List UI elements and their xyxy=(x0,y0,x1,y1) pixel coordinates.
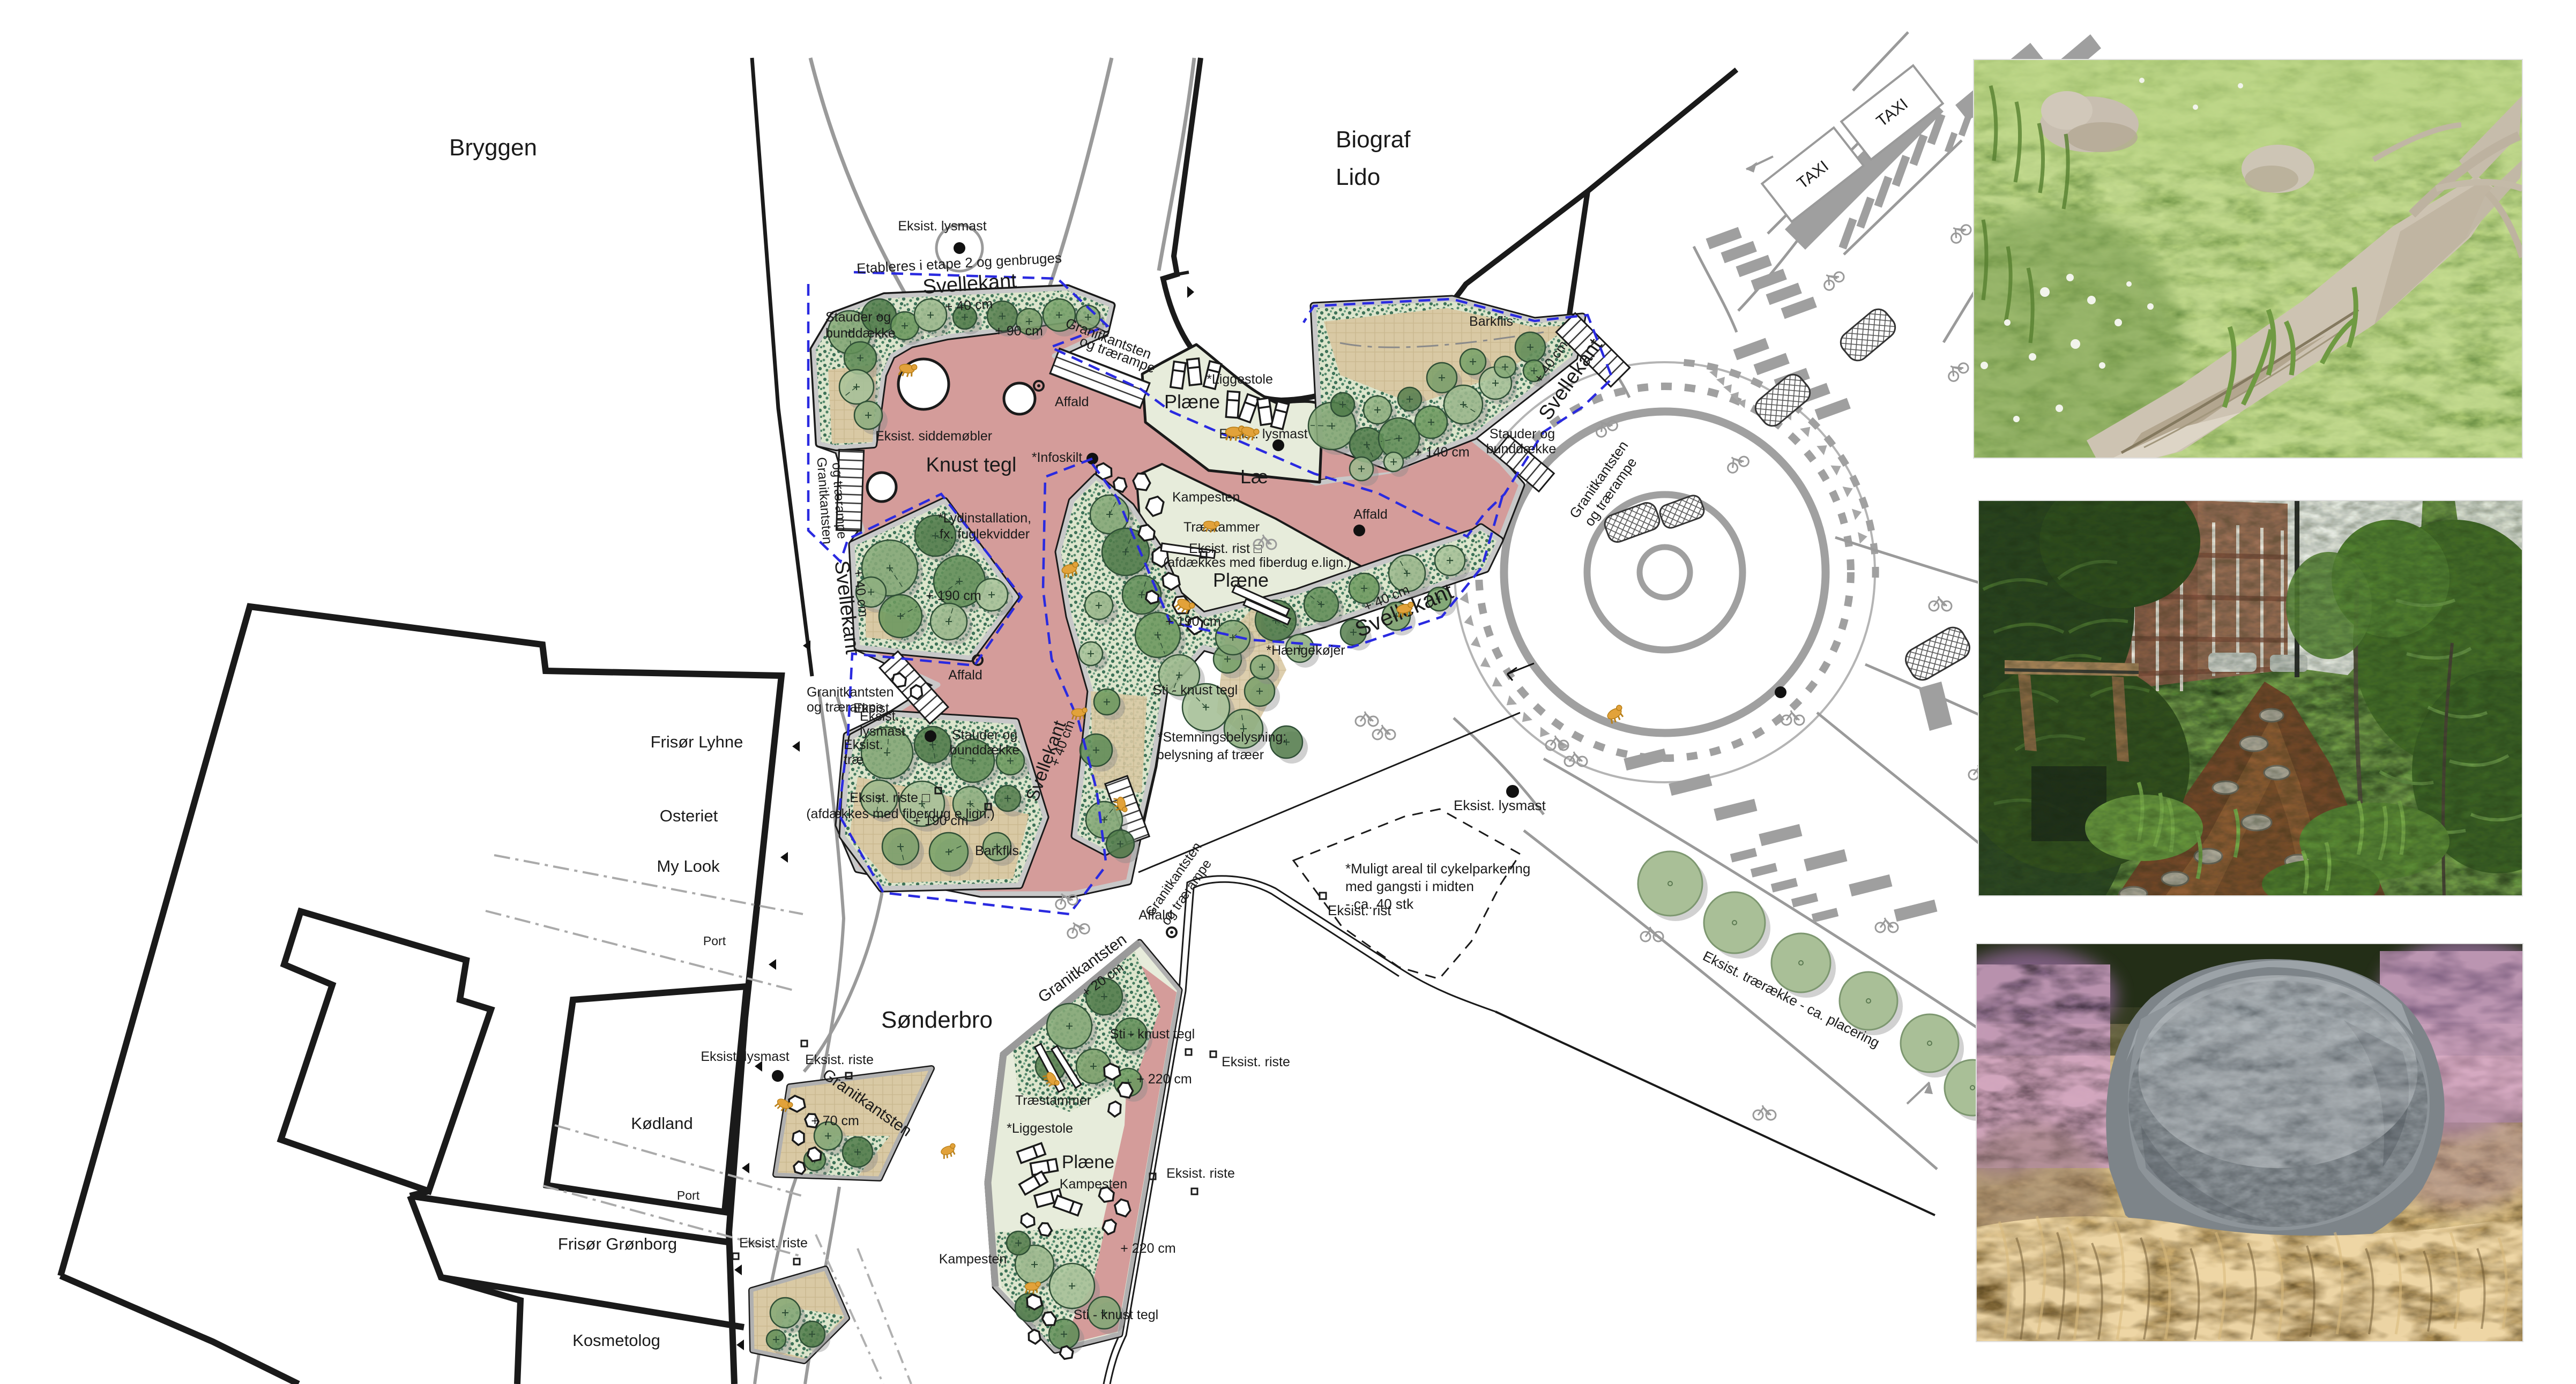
svg-text:Lido: Lido xyxy=(1336,164,1380,190)
svg-text:Eksist.: Eksist. xyxy=(853,701,893,716)
svg-text:+ 190 cm: + 190 cm xyxy=(926,588,981,603)
svg-text:+ 220 cm: + 220 cm xyxy=(1120,1241,1176,1256)
svg-text:*Stemningsbelysning:: *Stemningsbelysning: xyxy=(1158,730,1286,745)
svg-text:Affald: Affald xyxy=(1055,394,1089,409)
svg-text:Kampesten: Kampesten xyxy=(1172,490,1240,505)
svg-text:Eksist. lysmast: Eksist. lysmast xyxy=(701,1049,789,1064)
svg-text:Kampesten: Kampesten xyxy=(939,1252,1007,1267)
svg-text:Plæne: Plæne xyxy=(1164,391,1220,413)
svg-text:Stauder og: Stauder og xyxy=(1490,427,1555,442)
svg-text:Eksist. siddemøbler: Eksist. siddemøbler xyxy=(875,429,992,444)
svg-text:+ 90 cm: + 90 cm xyxy=(995,324,1043,339)
svg-text:Barkflis: Barkflis xyxy=(1469,314,1513,329)
svg-text:bunddække: bunddække xyxy=(950,743,1020,758)
svg-text:Eksist. riste: Eksist. riste xyxy=(805,1052,874,1067)
svg-text:Træstammer: Træstammer xyxy=(1015,1093,1091,1108)
svg-text:Eksist. riste: Eksist. riste xyxy=(739,1236,808,1251)
svg-text:Eksist. rist: Eksist. rist xyxy=(1328,902,1391,918)
svg-text:Kødland: Kødland xyxy=(631,1114,693,1133)
svg-text:Knust tegl: Knust tegl xyxy=(926,454,1017,476)
svg-text:Læ: Læ xyxy=(1240,466,1268,488)
svg-text:Eksist. riste: Eksist. riste xyxy=(1166,1166,1235,1181)
svg-text:*Muligt areal til cykelparkeri: *Muligt areal til cykelparkering xyxy=(1345,861,1530,877)
svg-text:Affald: Affald xyxy=(1353,507,1387,522)
svg-text:Port: Port xyxy=(677,1188,700,1202)
svg-text:*Infoskilt: *Infoskilt xyxy=(1032,450,1083,465)
svg-text:Affald: Affald xyxy=(948,668,982,683)
svg-text:+ 70 cm: + 70 cm xyxy=(811,1113,859,1128)
svg-text:Sønderbro: Sønderbro xyxy=(881,1007,993,1033)
svg-text:Eksist. lysmast: Eksist. lysmast xyxy=(1454,797,1546,813)
svg-text:Frisør Grønborg: Frisør Grønborg xyxy=(558,1235,677,1253)
svg-text:My Look: My Look xyxy=(657,857,720,876)
svg-text:Eksist.: Eksist. xyxy=(844,737,883,752)
svg-text:+ 140 cm: + 140 cm xyxy=(1414,445,1470,460)
svg-text:*Hængekøjer: *Hængekøjer xyxy=(1266,643,1345,658)
svg-text:+ 220 cm: + 220 cm xyxy=(1136,1072,1192,1087)
svg-text:Granitkantsten: Granitkantsten xyxy=(807,685,894,700)
svg-text:bunddække: bunddække xyxy=(825,326,896,341)
svg-text:*Liggestole: *Liggestole xyxy=(1207,372,1273,387)
svg-text:Plæne: Plæne xyxy=(1062,1152,1114,1172)
svg-text:+ 190 cm: + 190 cm xyxy=(1165,614,1221,629)
svg-text:lysmast: lysmast xyxy=(860,724,905,739)
svg-text:Bryggen: Bryggen xyxy=(449,134,537,161)
svg-text:Kosmetolog: Kosmetolog xyxy=(572,1331,660,1350)
svg-text:Eksist. lysmast: Eksist. lysmast xyxy=(898,219,986,234)
svg-text:Stauder og: Stauder og xyxy=(952,728,1017,743)
svg-text:+ 190 cm: + 190 cm xyxy=(913,813,969,828)
svg-text:Plæne: Plæne xyxy=(1213,569,1269,591)
svg-text:Osteriet: Osteriet xyxy=(660,806,718,825)
svg-text:Barkflis: Barkflis xyxy=(975,843,1019,858)
svg-text:Kampesten: Kampesten xyxy=(1060,1177,1127,1192)
svg-text:*Liggestole: *Liggestole xyxy=(1007,1121,1073,1136)
svg-text:Frisør Lyhne: Frisør Lyhne xyxy=(651,732,743,751)
svg-text:Sti - knust tegl: Sti - knust tegl xyxy=(1153,683,1238,698)
svg-text:Sti - knust tegl: Sti - knust tegl xyxy=(1074,1307,1158,1322)
svg-text:med gangsti i midten: med gangsti i midten xyxy=(1345,878,1474,894)
svg-text:træ: træ xyxy=(844,752,864,767)
svg-text:*Lydinstallation,: *Lydinstallation, xyxy=(938,511,1031,526)
svg-text:Eksist. riste: Eksist. riste xyxy=(1222,1054,1290,1069)
svg-text:(afdækkes med fiberdug e.lign.: (afdækkes med fiberdug e.lign.) xyxy=(1163,555,1352,570)
svg-text:Eksist. riste □: Eksist. riste □ xyxy=(850,790,930,805)
svg-text:fx. fuglekvidder: fx. fuglekvidder xyxy=(940,527,1030,542)
svg-text:Træstammer: Træstammer xyxy=(1183,520,1260,535)
svg-text:Stauder og: Stauder og xyxy=(825,310,891,325)
svg-text:Port: Port xyxy=(703,934,726,948)
svg-text:bunddække: bunddække xyxy=(1486,442,1557,457)
svg-text:belysning af træer: belysning af træer xyxy=(1157,747,1264,762)
svg-text:Sti - knust tegl: Sti - knust tegl xyxy=(1110,1027,1195,1042)
svg-text:Biograf: Biograf xyxy=(1336,126,1411,153)
